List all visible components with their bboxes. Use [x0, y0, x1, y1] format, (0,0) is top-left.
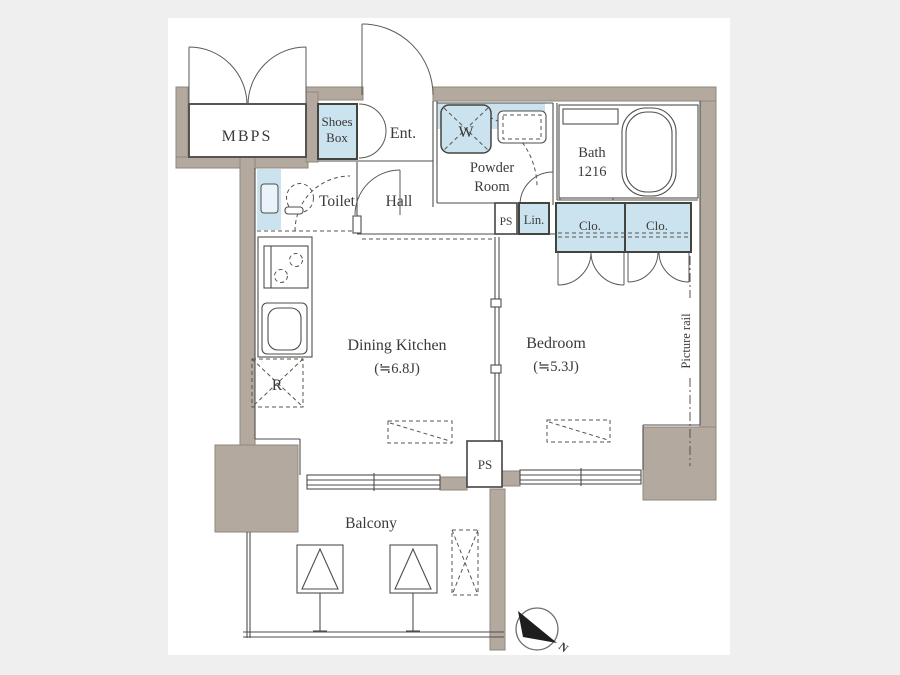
room-label-shoesbox-2: Box [326, 130, 348, 145]
room-label-mbps: MBPS [222, 128, 273, 145]
label-washer: W [458, 124, 474, 141]
toilet-seat [285, 207, 303, 214]
label-picture-rail: Picture rail [679, 313, 693, 369]
label-ps-lower: PS [478, 457, 492, 472]
label-ps-upper: PS [500, 216, 513, 228]
room-label-powder-2: Room [474, 179, 510, 195]
room-label-balcony: Balcony [345, 515, 397, 532]
room-label-dk-name: Dining Kitchen [347, 337, 446, 354]
label-linen: Lin. [524, 213, 544, 227]
room-label-bedroom-size: (≒5.3J) [533, 359, 579, 375]
floorplan-canvas: N MBPS Shoes Box Ent. Toilet Hall W Powd… [0, 0, 900, 675]
label-refrigerator: R [272, 377, 283, 394]
room-label-dk-size: (≒6.8J) [374, 361, 420, 377]
room-label-bedroom-name: Bedroom [526, 335, 586, 352]
room-label-entrance: Ent. [390, 125, 416, 142]
toilet-tank [261, 184, 278, 213]
bath-counter [563, 109, 618, 124]
room-label-toilet: Toilet [319, 193, 356, 210]
room-label-bath-2: 1216 [578, 164, 607, 180]
floorplan-drawing: N MBPS Shoes Box Ent. Toilet Hall W Powd… [0, 0, 900, 675]
room-label-powder-1: Powder [470, 160, 514, 176]
vanity-counter [498, 111, 546, 143]
label-closet-right: Clo. [646, 218, 668, 233]
room-label-hall: Hall [386, 193, 413, 210]
room-label-shoesbox-1: Shoes [321, 114, 352, 129]
label-closet-left: Clo. [579, 218, 601, 233]
room-label-bath-1: Bath [578, 145, 606, 161]
